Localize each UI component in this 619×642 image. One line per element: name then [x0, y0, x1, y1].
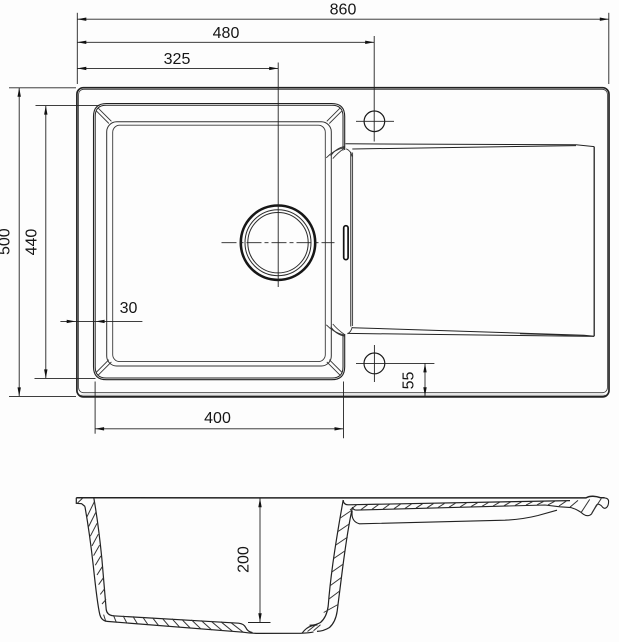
svg-text:480: 480	[213, 25, 240, 42]
svg-text:860: 860	[330, 2, 357, 19]
svg-text:500: 500	[0, 228, 14, 255]
svg-text:55: 55	[401, 372, 418, 390]
svg-text:440: 440	[24, 229, 41, 256]
svg-text:30: 30	[120, 300, 138, 317]
svg-text:325: 325	[164, 51, 191, 68]
svg-text:400: 400	[204, 410, 231, 427]
svg-text:200: 200	[236, 546, 253, 573]
